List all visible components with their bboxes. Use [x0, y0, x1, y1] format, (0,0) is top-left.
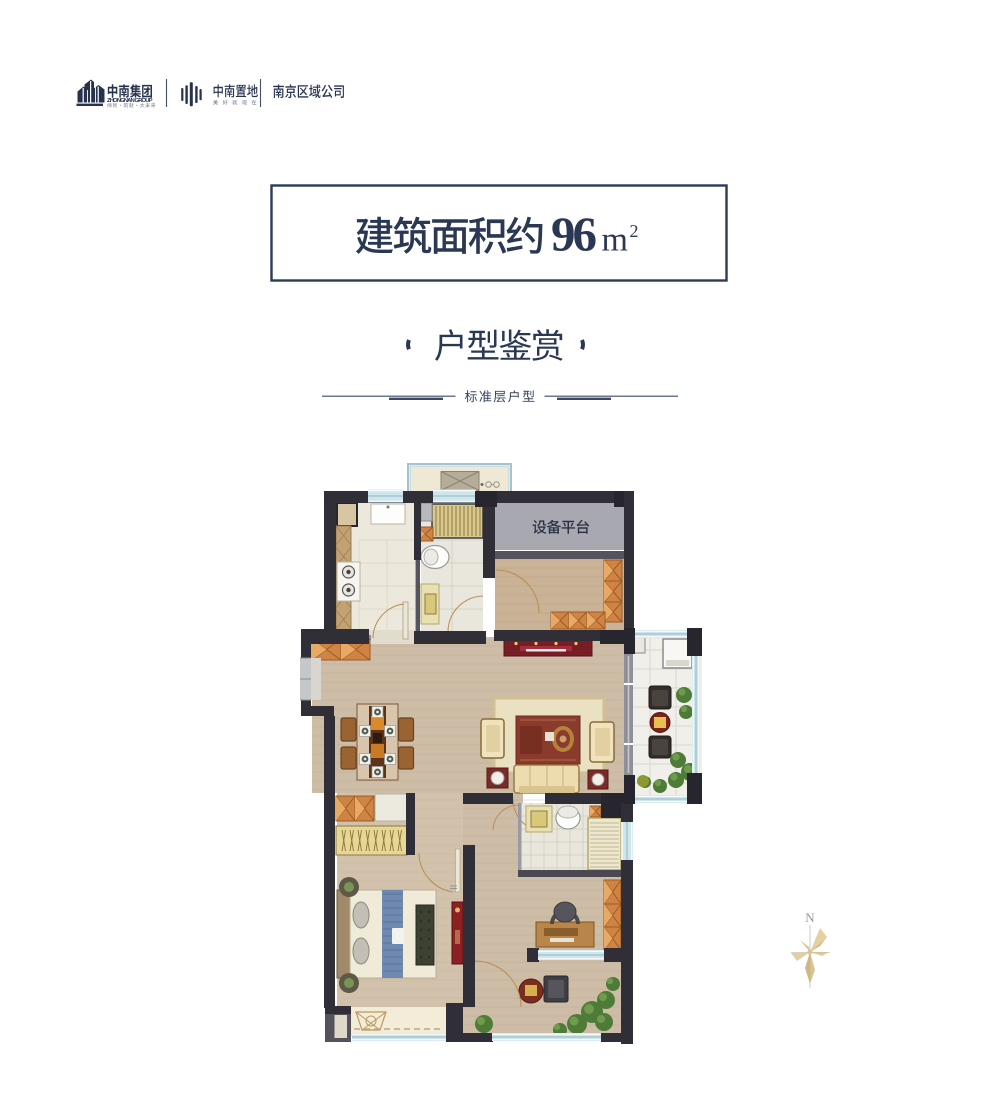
svg-text:2: 2: [630, 221, 639, 241]
svg-text:96: 96: [551, 206, 597, 261]
svg-text:m: m: [602, 221, 628, 258]
svg-text:N: N: [805, 910, 815, 925]
